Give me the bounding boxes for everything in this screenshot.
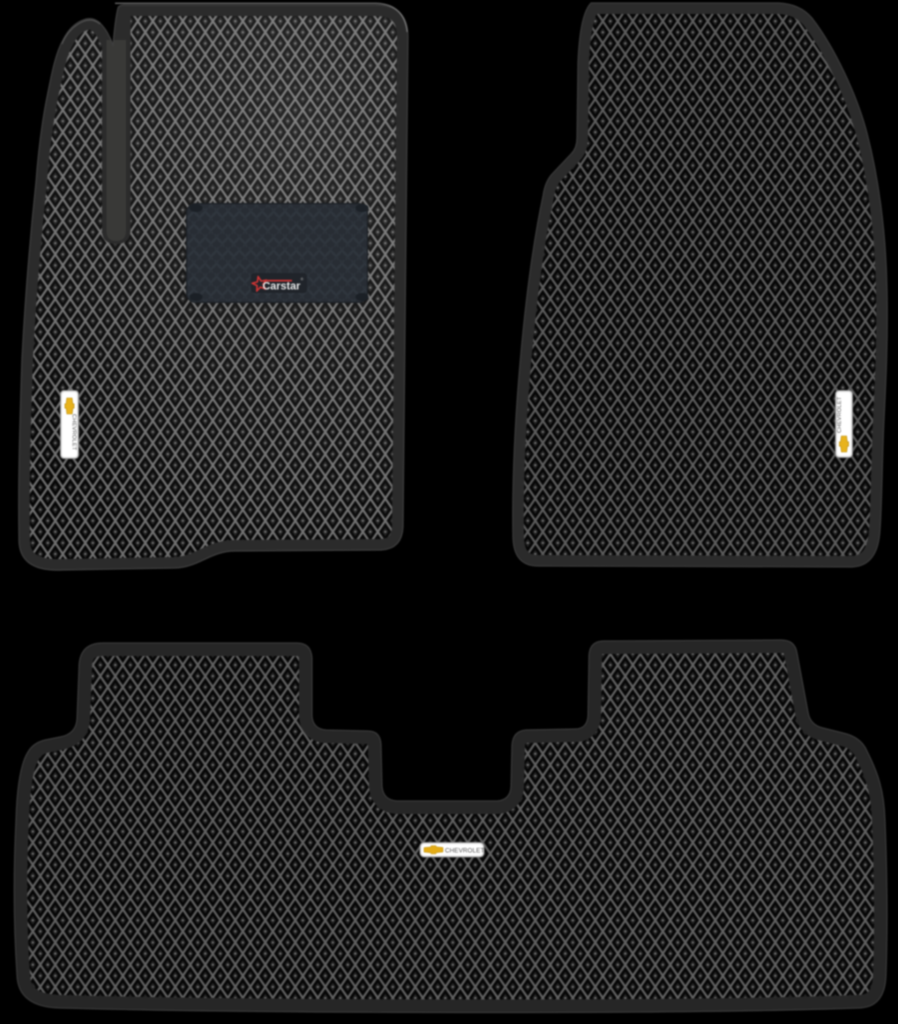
svg-text:CHEVROLET: CHEVROLET [445,847,484,854]
svg-text:Carstar: Carstar [263,281,302,293]
svg-text:®: ® [301,277,304,282]
svg-text:CHEVROLET: CHEVROLET [71,414,77,451]
svg-text:CHEVROLET: CHEVROLET [837,396,843,433]
